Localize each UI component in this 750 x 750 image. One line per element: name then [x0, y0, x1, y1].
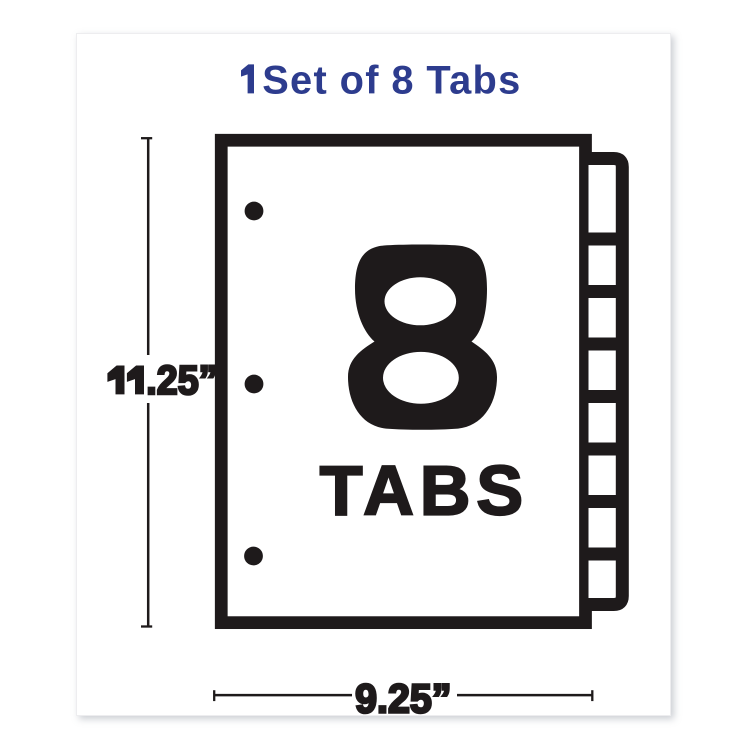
svg-text:.25”: .25”: [146, 359, 217, 404]
svg-text:9.25”: 9.25”: [355, 676, 451, 722]
svg-text:Set of 8 Tabs: Set of 8 Tabs: [262, 59, 521, 103]
svg-text:TABS: TABS: [320, 451, 529, 529]
